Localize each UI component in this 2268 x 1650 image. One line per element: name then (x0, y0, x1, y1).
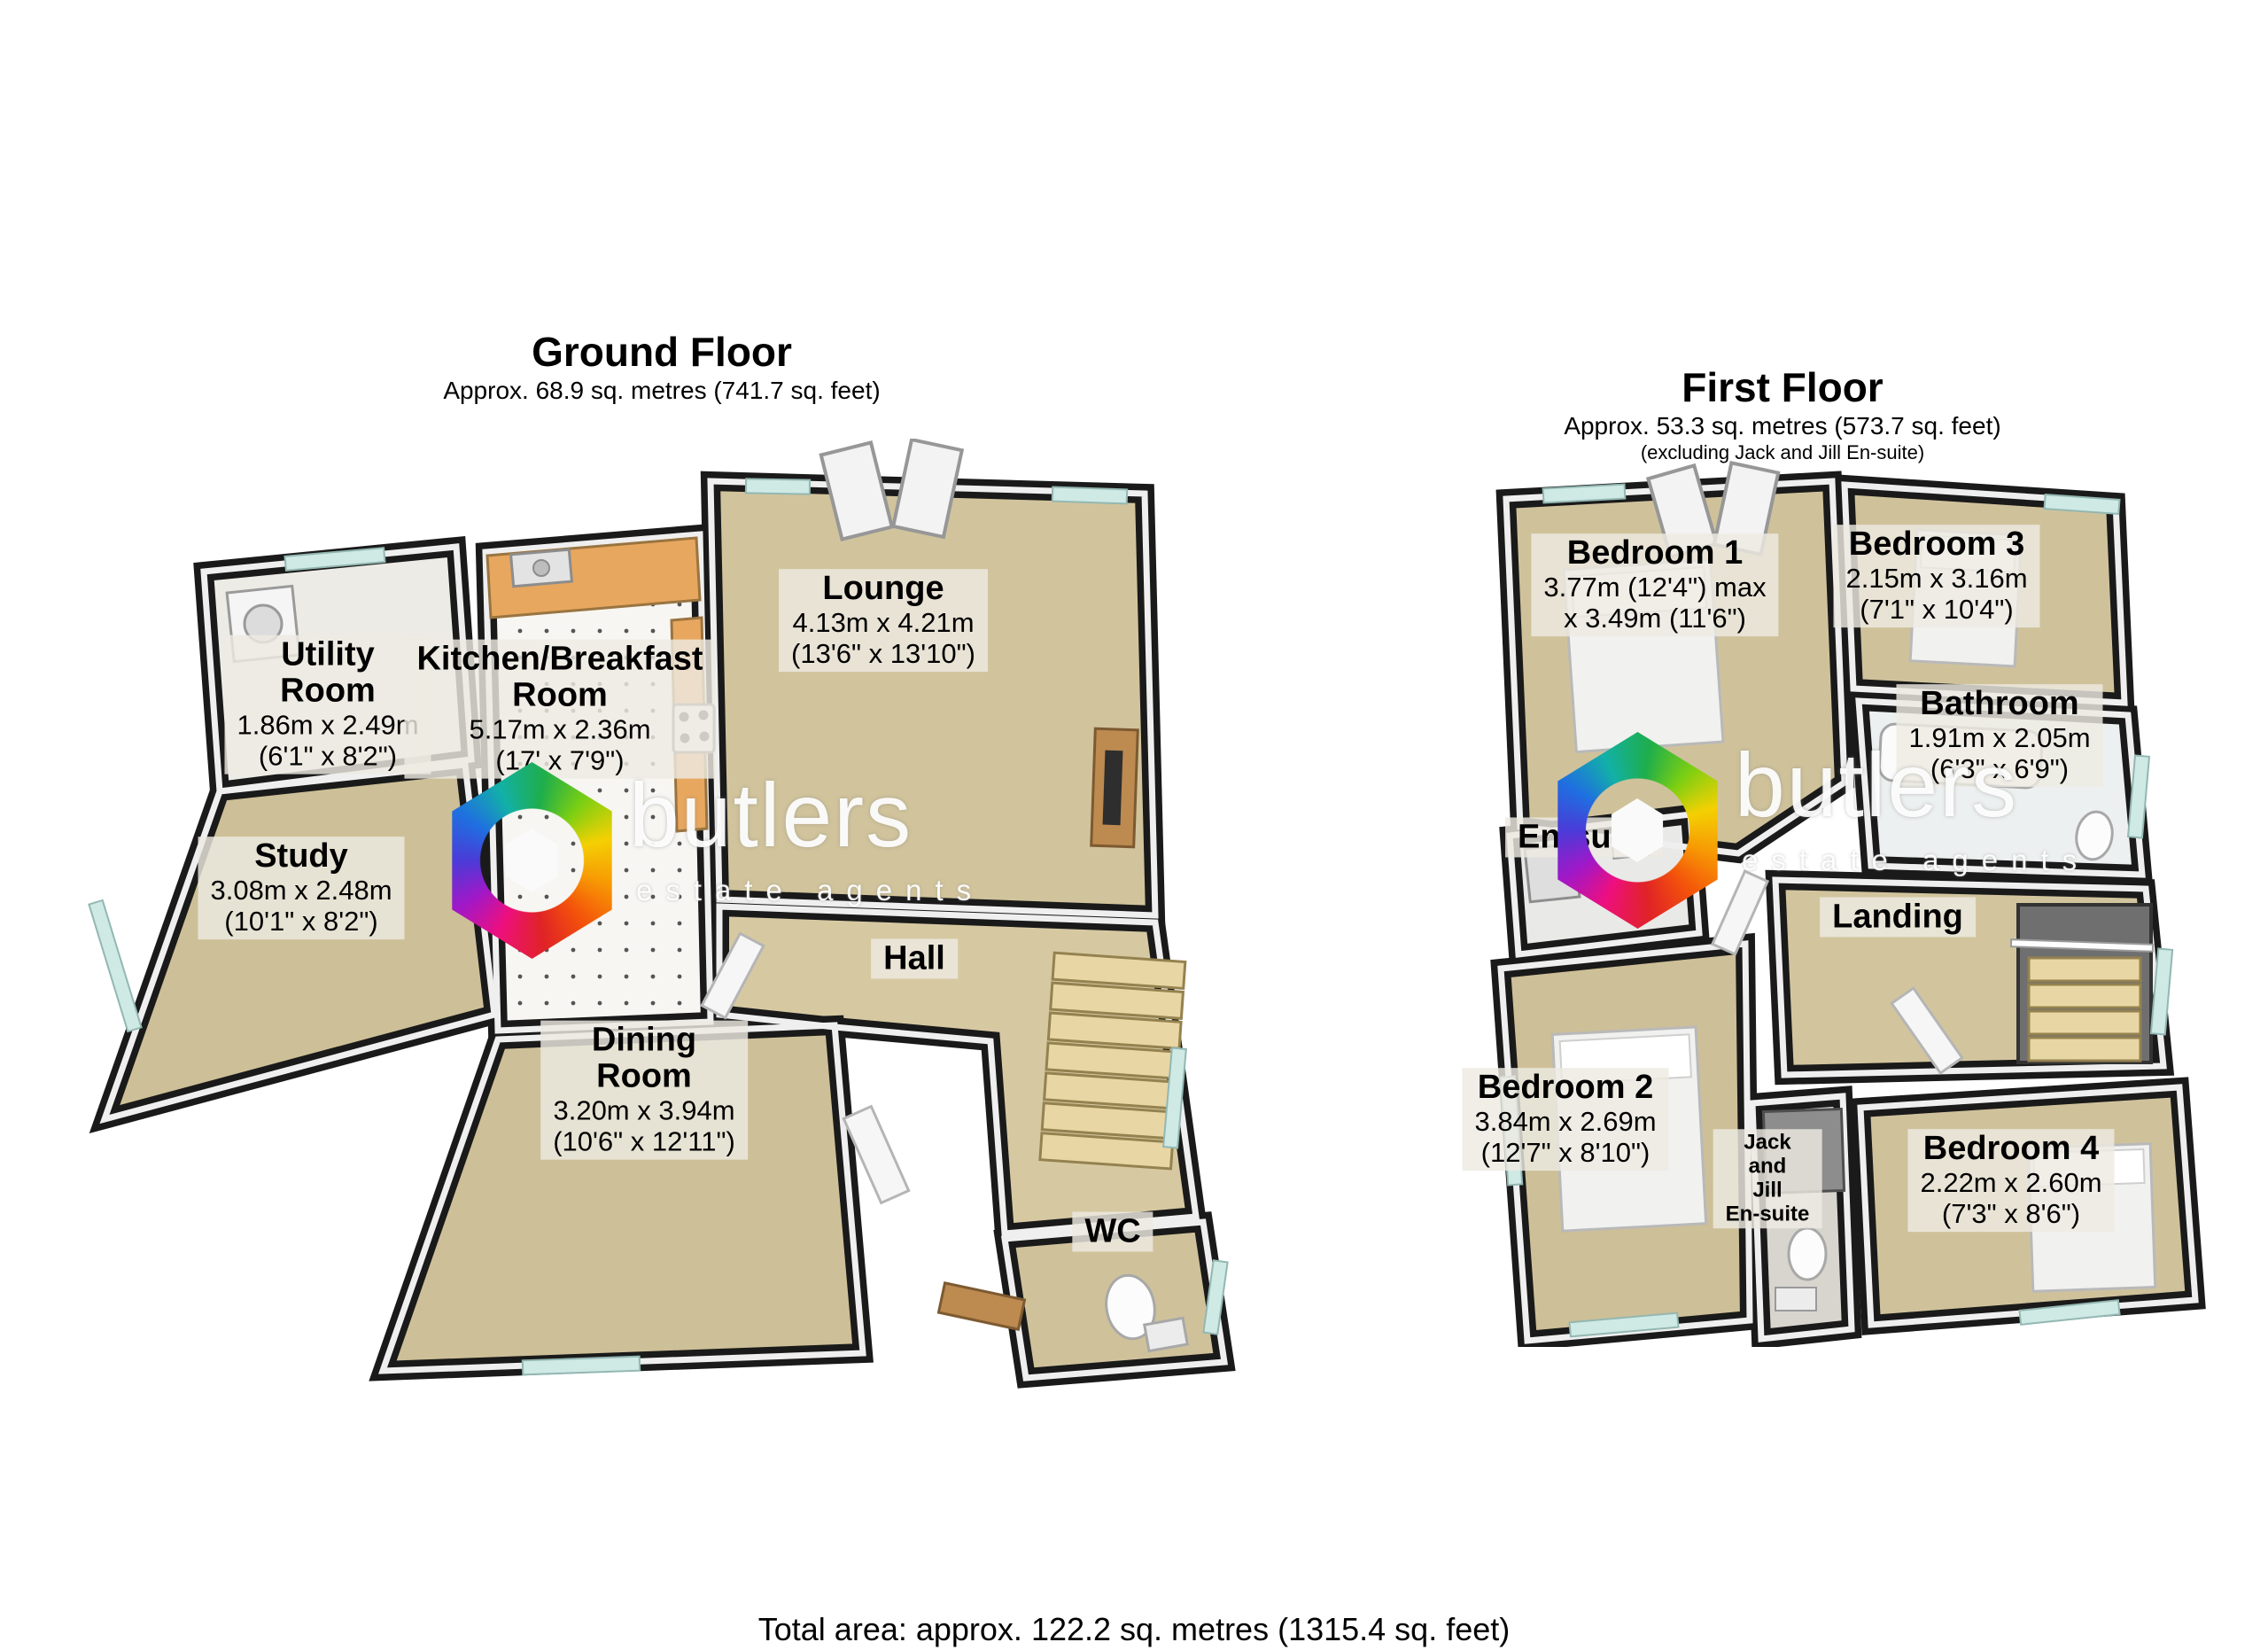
room-name: Bedroom 3 (1845, 526, 2027, 563)
room-label-kitchen: Kitchen/Breakfast Room 5.17m x 2.36m (17… (404, 640, 715, 779)
room-name: Landing (1832, 899, 1963, 935)
jj-sink (1775, 1288, 1816, 1311)
stair-step (2029, 958, 2140, 981)
room-dims-imperial: (10'6" x 12'11") (553, 1126, 735, 1157)
window (1543, 485, 1626, 503)
stair-step (2029, 1038, 2140, 1061)
room-label-study: Study 3.08m x 2.48m (10'1" x 8'2") (198, 837, 404, 939)
stair-step (2029, 1011, 2140, 1034)
room-dims-imperial: x 3.49m (11'6") (1543, 603, 1766, 634)
room-label-bathroom: Bathroom 1.91m x 2.05m (6'3" x 6'9") (1896, 684, 2102, 787)
ground-floor-title: Ground Floor (443, 330, 880, 375)
room-label-lounge: Lounge 4.13m x 4.21m (13'6" x 13'10") (779, 569, 988, 672)
room-dims-metric: 2.15m x 3.16m (1845, 563, 2027, 594)
stair-step (2029, 985, 2140, 1008)
room-name: Dining Room (553, 1023, 735, 1095)
room-dims-imperial: (7'3" x 8'6") (1920, 1199, 2101, 1230)
room-name: Kitchen/Breakfast Room (416, 642, 703, 714)
room-label-landing: Landing (1820, 897, 1976, 937)
ground-floor-title-block: Ground Floor Approx. 68.9 sq. metres (74… (443, 330, 880, 406)
room-dims-imperial: (10'1" x 8'2") (210, 907, 392, 938)
tv-screen (1103, 751, 1123, 826)
room-lounge (711, 481, 1155, 915)
first-floor-title: First Floor (1564, 365, 2000, 410)
room-label-bedroom-1: Bedroom 1 3.77m (12'4") max x 3.49m (11'… (1531, 533, 1778, 636)
room-name: Utility Room (237, 637, 418, 710)
jj-toilet (1789, 1228, 1826, 1280)
room-dims-imperial: (12'7" x 8'10") (1474, 1138, 1656, 1169)
room-name: Bedroom 4 (1920, 1131, 2101, 1167)
room-label-bedroom-2: Bedroom 2 3.84m x 2.69m (12'7" x 8'10") (1462, 1068, 1668, 1171)
room-name: Lounge (791, 571, 975, 607)
room-label-wc: WC (1072, 1211, 1153, 1251)
room-dims-imperial: (13'6" x 13'10") (791, 639, 975, 670)
room-label-bedroom-4: Bedroom 4 2.22m x 2.60m (7'3" x 8'6") (1907, 1129, 2114, 1232)
wc-cistern (1145, 1318, 1188, 1350)
ground-floor-subtitle: Approx. 68.9 sq. metres (741.7 sq. feet) (443, 375, 880, 406)
room-name: Bathroom (1908, 686, 2090, 722)
room-name: En-suite (1518, 819, 1651, 855)
room-label-bedroom-3: Bedroom 3 2.15m x 3.16m (7'1" x 10'4") (1833, 525, 2039, 627)
window (523, 1357, 640, 1375)
open-door (1713, 871, 1767, 954)
room-dims-imperial: (6'1" x 8'2") (237, 741, 418, 772)
window (1052, 487, 1128, 504)
room-label-dining: Dining Room 3.20m x 3.94m (10'6" x 12'11… (540, 1021, 748, 1160)
sink-basin (533, 560, 549, 576)
room-dims-metric: 3.08m x 2.48m (210, 875, 392, 906)
room-name: Bedroom 2 (1474, 1070, 1656, 1106)
room-label-utility: Utility Room 1.86m x 2.49m (6'1" x 8'2") (224, 635, 431, 774)
room-dims-metric: 1.86m x 2.49m (237, 710, 418, 741)
room-label-jack-and-jill: Jack and Jill En-suite (1713, 1129, 1822, 1228)
window (89, 900, 141, 1031)
room-name: Study (210, 838, 392, 875)
floorplan-page: Ground Floor Approx. 68.9 sq. metres (74… (0, 0, 2268, 1650)
room-dims-imperial: (17' x 7'9") (416, 745, 703, 776)
room-dims-metric: 4.13m x 4.21m (791, 607, 975, 638)
room-dims-imperial: (7'1" x 10'4") (1845, 595, 2027, 626)
room-name: WC (1084, 1213, 1140, 1249)
room-dims-imperial: (6'3" x 6'9") (1908, 754, 2090, 785)
room-name: Bedroom 1 (1543, 535, 1766, 572)
room-dims-metric: 3.77m (12'4") max (1543, 572, 1766, 603)
room-label-en-suite: En-suite (1505, 817, 1663, 857)
first-floor-note: (excluding Jack and Jill En-suite) (1564, 441, 2000, 464)
room-name: Jack and Jill En-suite (1726, 1131, 1810, 1226)
room-label-hall: Hall (871, 938, 958, 978)
total-area-text: Total area: approx. 122.2 sq. metres (13… (758, 1611, 1510, 1648)
room-dims-metric: 5.17m x 2.36m (416, 714, 703, 745)
room-name: Hall (883, 940, 945, 977)
window (746, 479, 810, 494)
room-dims-metric: 1.91m x 2.05m (1908, 722, 2090, 753)
room-dims-metric: 3.84m x 2.69m (1474, 1106, 1656, 1137)
first-floor-title-block: First Floor Approx. 53.3 sq. metres (573… (1564, 365, 2000, 464)
room-dims-metric: 3.20m x 3.94m (553, 1095, 735, 1126)
first-floor-subtitle: Approx. 53.3 sq. metres (573.7 sq. feet) (1564, 410, 2000, 441)
room-dims-metric: 2.22m x 2.60m (1920, 1167, 2101, 1198)
